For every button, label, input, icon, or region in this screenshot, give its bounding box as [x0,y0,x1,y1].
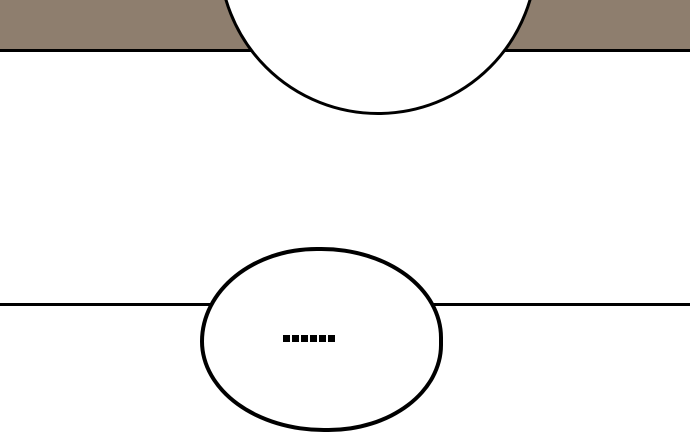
comic-panel [0,0,690,441]
speech-bubble-top [218,0,538,115]
ellipsis-text [283,335,335,342]
